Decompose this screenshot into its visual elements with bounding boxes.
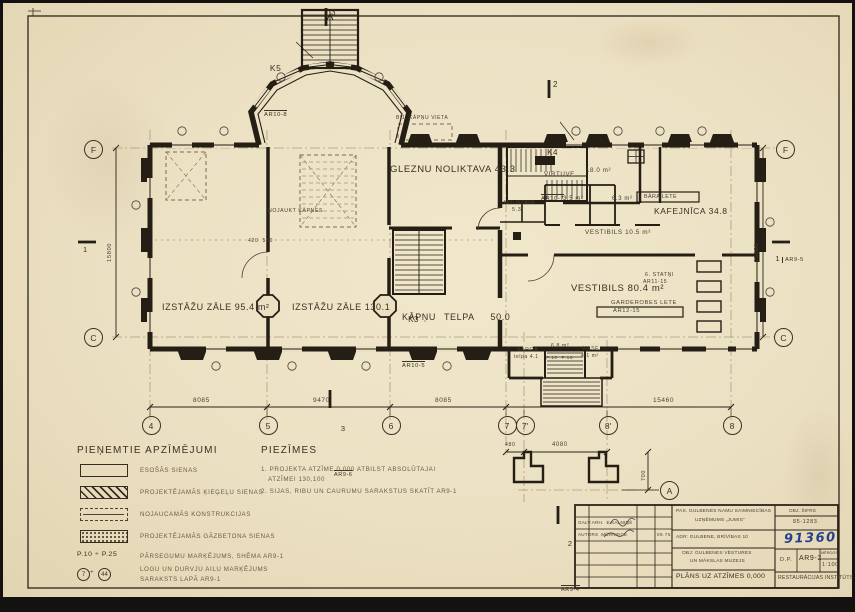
legend-label-existing-walls: ESOŠĀS SIENAS [140, 467, 198, 474]
annotation-dim-420-550: 420 550 [248, 239, 273, 245]
grid-bubble-8p: 8' [599, 416, 618, 435]
stair-k5-code: K5 [264, 64, 287, 74]
stair-label-k5: K5 AR10-8 [264, 27, 287, 137]
dim-vertical-left: 15800 [107, 243, 114, 262]
legend-swatch-gas-concrete [80, 530, 128, 543]
legend-label-demolished: NOJAUCAMĀS KONSTRUKCIJAS [140, 511, 251, 518]
titleblock-client-2: UZŅĒMUMS „JUMIS” [695, 518, 745, 524]
legend-circled-44: 44 [98, 568, 111, 581]
dim-9470: 9470 [313, 397, 330, 404]
legend-range-divider: ÷ [90, 569, 94, 576]
grid-bubble-7: 7 [498, 416, 517, 435]
annotation-nojaukt-kapnes: NOJAUKT KĀPNES [268, 209, 323, 215]
room-label-statni-ref: AR11-15 [643, 280, 667, 286]
grid-bubble-4: 4 [142, 416, 161, 435]
titleblock-object-2: UN MĀKSLAS MUZEJS [690, 559, 745, 565]
section-3-number: 3 [334, 425, 353, 434]
section-2-ref: AR9-4 [561, 585, 580, 593]
room-label-bara-lete: BĀRA LETE [644, 194, 677, 200]
legend-swatch-brick-walls [80, 486, 128, 499]
titleblock-cipher-label: OBJ. ŠIFRS [789, 508, 816, 513]
room-label-sarga-area: 6.8 m² [551, 344, 569, 350]
grid-bubble-7p: 7' [516, 416, 535, 435]
grid-bubble-5: 5 [259, 416, 278, 435]
stair-k4-ref: AR10-7 [541, 194, 564, 203]
titleblock-chief-architect: GALV.ARH. E.KALNIŅŠ [578, 520, 632, 525]
room-label-vestibils-small: VESTIBILS 10.5 m² [585, 229, 651, 236]
section-2-top: 2 [553, 80, 558, 89]
titleblock-author: AUTORS MŪRNIECE [578, 532, 627, 537]
notes-title: PIEZĪMES [261, 445, 317, 457]
legend-label-openings-2: SARAKSTS LAPĀ AR9-1 [140, 576, 221, 583]
titleblock-handwritten-number: 91360 [784, 531, 837, 548]
section-1-left: 1 [83, 246, 88, 255]
room-label-garderobe-ref: AR12-15 [613, 308, 640, 315]
dim-700: 700 [641, 470, 647, 481]
legend-swatch-existing-walls [80, 464, 128, 477]
room-label-gleznu-noliktava: GLEZNU NOLIKTAVA 43.3 [390, 165, 516, 176]
beam-marks-p10: P.10 P.10 [546, 356, 573, 362]
dim-4080: 4080 [552, 442, 568, 449]
room-label-virtuve: VIRTUVE [544, 171, 575, 178]
section-1-right: 1AR9-5 [770, 246, 804, 263]
room-label-izstazu-zale-1: IZSTĀŽU ZĀLE 95.4 m² [162, 302, 270, 312]
room-label-35: 3.5 m² [563, 196, 584, 203]
room-label-63: 6.3 m² [612, 196, 633, 203]
section-2-bottom: 2 AR9-4 [561, 503, 580, 612]
room-label-izstazu-zale-2: IZSTĀŽU ZĀLE 130.1 [292, 302, 390, 312]
dim-15460: 15460 [653, 397, 674, 404]
notes-line-3: 2. SIJAS, RIBU UN CAURUMU SARAKSTUS SKAT… [261, 488, 457, 495]
stair-k4-code: K4 [541, 148, 564, 157]
titleblock-client-1: PAS. GULBENES NAMU SAIMNIECĪBAS [676, 509, 771, 515]
legend-title: PIEŅEMTIE APZĪMĒJUMI [77, 445, 218, 457]
room-label-kase-area: 4.1 m² [581, 354, 599, 360]
legend-label-brick-walls: PROJEKTĒJAMĀS ĶIEĢEĻU SIENAS [140, 489, 263, 496]
stair-label-k3: K3 AR10-5 [402, 278, 425, 388]
section-1-number: 1 [775, 254, 780, 263]
annotation-bij-kapnu-vieta: BIJ. KĀPŅU VIETA [396, 116, 448, 122]
notes-line-2: ATZĪMEI 130,100 [268, 476, 325, 483]
legend-label-slab-marks: PĀRSEGUMU MARĶĒJUMS, SHĒMA AR9-1 [140, 553, 284, 560]
dim-480: 480 [505, 443, 515, 449]
grid-bubble-c-left: C [84, 328, 103, 347]
titleblock-address: ADR: GULBENE, BRĪVĪBAS 10 [676, 535, 748, 541]
titleblock-scale-value: 1:100 [822, 562, 839, 568]
stair-label-k4: K4 AR10-7 [541, 111, 564, 221]
room-label-garderobe: GARDEROBES LETE [611, 300, 677, 307]
room-label-kapnu-telpa: KĀPŅU TELPA 50.0 [402, 312, 510, 322]
grid-bubble-6: 6 [382, 416, 401, 435]
section-3-bottom: 3 AR9-6 [334, 388, 353, 497]
grid-bubble-a: A [660, 481, 679, 500]
room-label-virtuve-area: 18.0 m² [586, 167, 611, 174]
titleblock-dp-label: D.P. [780, 557, 792, 563]
titleblock-cipher-value: 85-1283 [793, 519, 817, 525]
dim-vertical-right: 15800 [754, 243, 761, 262]
room-label-noliktava-area: 5.3 [512, 207, 521, 213]
grid-bubble-8: 8 [723, 416, 742, 435]
room-label-kafejnica: KAFEJNĪCA 34.8 [654, 207, 728, 217]
legend-swatch-demolished [80, 508, 128, 521]
legend-label-openings-1: LOGU UN DURVJU AILU MARĶĒJUMS [140, 566, 268, 573]
stair-k3-ref: AR10-5 [402, 361, 425, 370]
section-2-number: 2 [561, 540, 580, 549]
room-label-noliktava: NOLIKTAVA [504, 200, 535, 206]
notes-line-1: 1. PROJEKTA ATZĪME 0,000 ATBILST ABSOLŪT… [261, 466, 436, 473]
room-label-sarga-telpa: telpa 4.1 [514, 355, 539, 361]
legend-key-slab-marks: P.10 ÷ P.25 [77, 551, 117, 559]
titleblock-sheet-number: AR9-2 [799, 555, 822, 563]
titleblock-organization: RESTAURĀCIJAS INSTITŪTS [778, 576, 853, 582]
grid-bubble-f-left: F [84, 140, 103, 159]
titleblock-date: 09.75 [657, 532, 671, 537]
dim-8085-left: 8085 [193, 397, 210, 404]
titleblock-drawing-title: PLĀNS UZ ATZĪMES 0,000 [676, 573, 765, 581]
legend-label-gas-concrete: PROJEKTĒJAMĀS GĀZBETONA SIENAS [140, 533, 275, 540]
grid-bubble-c-right: C [774, 328, 793, 347]
scanned-floorplan-sheet: { "plan": { "stairs": {"k5":"K5","k5_ref… [0, 0, 855, 600]
titleblock-scale-label: MĒROGS [821, 551, 838, 555]
legend-circled-7: 7 [77, 568, 90, 581]
grid-bubble-f-right: F [776, 140, 795, 159]
section-1-ref: AR9-5 [782, 257, 804, 263]
dim-8085-right: 8085 [435, 397, 452, 404]
titleblock-object-1: OBJ: GULBENES VĒSTURES [682, 551, 752, 557]
stair-k5-ref: AR10-8 [264, 110, 287, 119]
section-3-top: 3 [331, 8, 336, 17]
